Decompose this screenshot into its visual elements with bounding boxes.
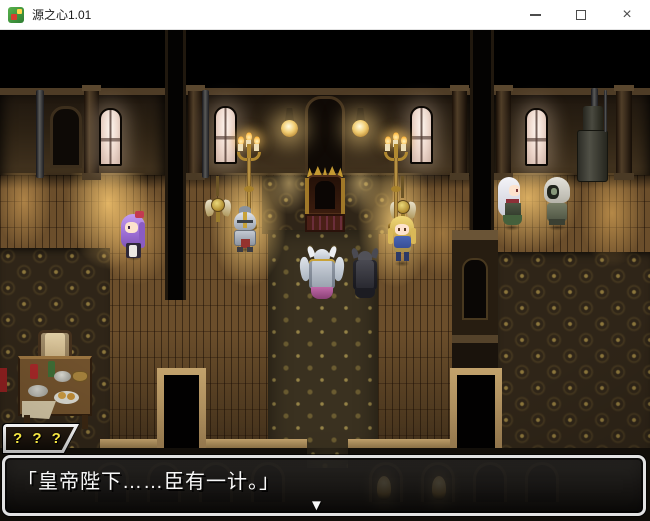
character-blonde-knight-blue-armor xyxy=(387,214,417,266)
red-banner xyxy=(0,368,7,392)
character-purple-haired-attendant xyxy=(119,210,149,260)
speaker-name: ? ? ? xyxy=(13,430,64,447)
ceiling xyxy=(0,30,650,88)
character-black-armor-general xyxy=(346,248,384,298)
bottle-red xyxy=(30,364,38,379)
bread xyxy=(58,392,66,399)
bread xyxy=(67,393,75,400)
table-leg xyxy=(82,415,88,429)
wall-lamp-icon xyxy=(352,120,369,137)
character-hooded-figure xyxy=(540,175,574,230)
character-white-winged-armor-general xyxy=(300,247,344,299)
column xyxy=(616,90,632,178)
wall-trim xyxy=(100,439,157,448)
app-icon xyxy=(8,7,24,23)
wall-crest-icon xyxy=(205,194,231,224)
doorway-opening xyxy=(164,375,199,448)
window-title: 源之心1.01 xyxy=(32,6,91,23)
shrine-niche xyxy=(462,258,488,320)
furnace-side-pipe xyxy=(604,90,607,132)
game-window: 源之心1.01 × xyxy=(0,0,650,521)
corridor-left xyxy=(165,30,186,300)
crest-tail xyxy=(216,212,220,222)
column xyxy=(84,90,99,178)
column xyxy=(452,90,467,178)
doorway-left xyxy=(157,368,206,448)
furnace-icon xyxy=(577,130,608,182)
throne xyxy=(305,166,345,232)
throne-seat xyxy=(315,181,335,209)
titlebar[interactable]: 源之心1.01 × xyxy=(0,0,650,30)
arched-window xyxy=(525,108,548,166)
shrine-alcove xyxy=(452,230,498,370)
corridor-right xyxy=(470,30,494,262)
column xyxy=(496,90,511,178)
wall-trim xyxy=(206,439,307,448)
doorway-opening xyxy=(457,375,495,448)
shrine-shelf xyxy=(452,335,498,343)
close-icon: × xyxy=(622,7,631,23)
dining-table xyxy=(18,356,92,416)
close-button[interactable]: × xyxy=(604,0,650,30)
crest-pole xyxy=(216,176,219,196)
wall-pipe xyxy=(202,90,209,178)
continue-indicator-icon[interactable]: ▼ xyxy=(309,498,324,513)
throne-base xyxy=(305,214,345,232)
character-silver-knight xyxy=(229,206,261,252)
minimize-icon xyxy=(530,14,541,16)
shrine-cornice xyxy=(452,230,498,240)
furnace-tank xyxy=(583,106,603,132)
silver-bowl xyxy=(54,371,71,382)
column xyxy=(188,90,203,178)
wall-pipe xyxy=(36,90,44,178)
dialogue-window[interactable]: 「皇帝陛下……臣有一计。」 xyxy=(2,455,646,516)
dialogue-text: 「皇帝陛下……臣有一计。」 xyxy=(17,465,280,494)
maximize-button[interactable] xyxy=(558,0,604,30)
wall-lamp-icon xyxy=(281,120,298,137)
wall-left xyxy=(0,88,165,176)
sprite-shadow xyxy=(391,259,414,268)
shrine-lower xyxy=(452,343,498,370)
throne-niche xyxy=(305,96,345,176)
crest-disc xyxy=(211,198,225,212)
wallpaper-right xyxy=(498,252,650,448)
arched-window xyxy=(99,108,122,166)
doorway-right xyxy=(450,368,502,448)
wall-alcove xyxy=(50,106,82,168)
arched-window xyxy=(214,106,237,164)
minimize-button[interactable] xyxy=(512,0,558,30)
plate xyxy=(28,385,48,397)
character-white-haired-noble xyxy=(496,175,528,230)
maximize-icon xyxy=(576,10,586,20)
basket xyxy=(72,371,88,382)
arched-window xyxy=(410,106,433,164)
wall-trim xyxy=(348,439,450,448)
game-viewport[interactable]: ? ? ? 「皇帝陛下……臣有一计。」 ▼ xyxy=(0,30,650,521)
